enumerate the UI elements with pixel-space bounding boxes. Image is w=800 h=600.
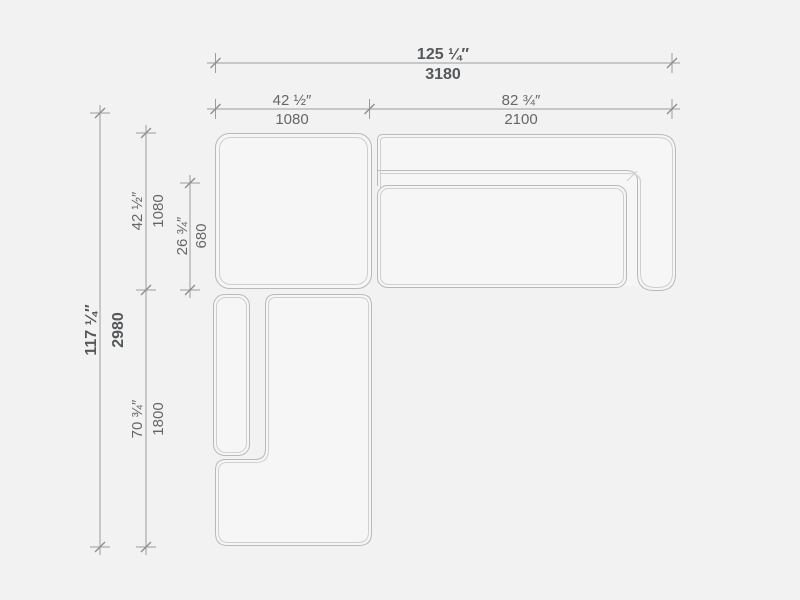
dimension-overall-width: 125 ¼″ 3180 [417,46,469,83]
overall-width-mm-label: 3180 [425,66,461,83]
seat-depth-mm-label: 680 [193,223,210,248]
corner-depth-inches-label: 42 ½″ [129,191,146,230]
dimension-corner-module-depth: 42 ½″ 1080 [129,191,167,230]
chaise-length-mm-label: 1800 [150,402,167,435]
seat-depth-inches-label: 26 ¾″ [174,216,191,255]
corner-depth-mm-label: 1080 [150,194,167,227]
sofa-dimension-drawing: 125 ¼″ 3180 42 ½″ 1080 82 ¾″ 2100 117 ¼″… [0,0,800,600]
dimension-chaise-length: 70 ¾″ 1800 [129,399,167,438]
left-section-mm-label: 1080 [275,111,308,128]
overall-width-inches-label: 125 ¼″ [417,46,469,63]
dimension-seat-depth: 26 ¾″ 680 [174,216,210,255]
drawing-canvas: 125 ¼″ 3180 42 ½″ 1080 82 ¾″ 2100 117 ¼″… [0,0,800,600]
dimension-overall-depth: 117 ¼″ 2980 [83,304,127,356]
corner-module [216,134,372,289]
right-section-mm-label: 2100 [504,111,537,128]
right-section-inches-label: 82 ¾″ [502,92,541,109]
overall-depth-mm-label: 2980 [110,312,127,348]
dimension-left-section-width: 42 ½″ 1080 [273,92,312,128]
sofa-seat-cushion [378,186,627,288]
sofa-module [378,135,676,291]
chaise-length-inches-label: 70 ¾″ [129,399,146,438]
chaise-module [214,295,372,546]
armrest-cushion [214,295,250,456]
dimension-right-section-width: 82 ¾″ 2100 [502,92,541,128]
dimension-lines-vertical [90,105,200,555]
left-section-inches-label: 42 ½″ [273,92,312,109]
overall-depth-inches-label: 117 ¼″ [83,304,100,356]
